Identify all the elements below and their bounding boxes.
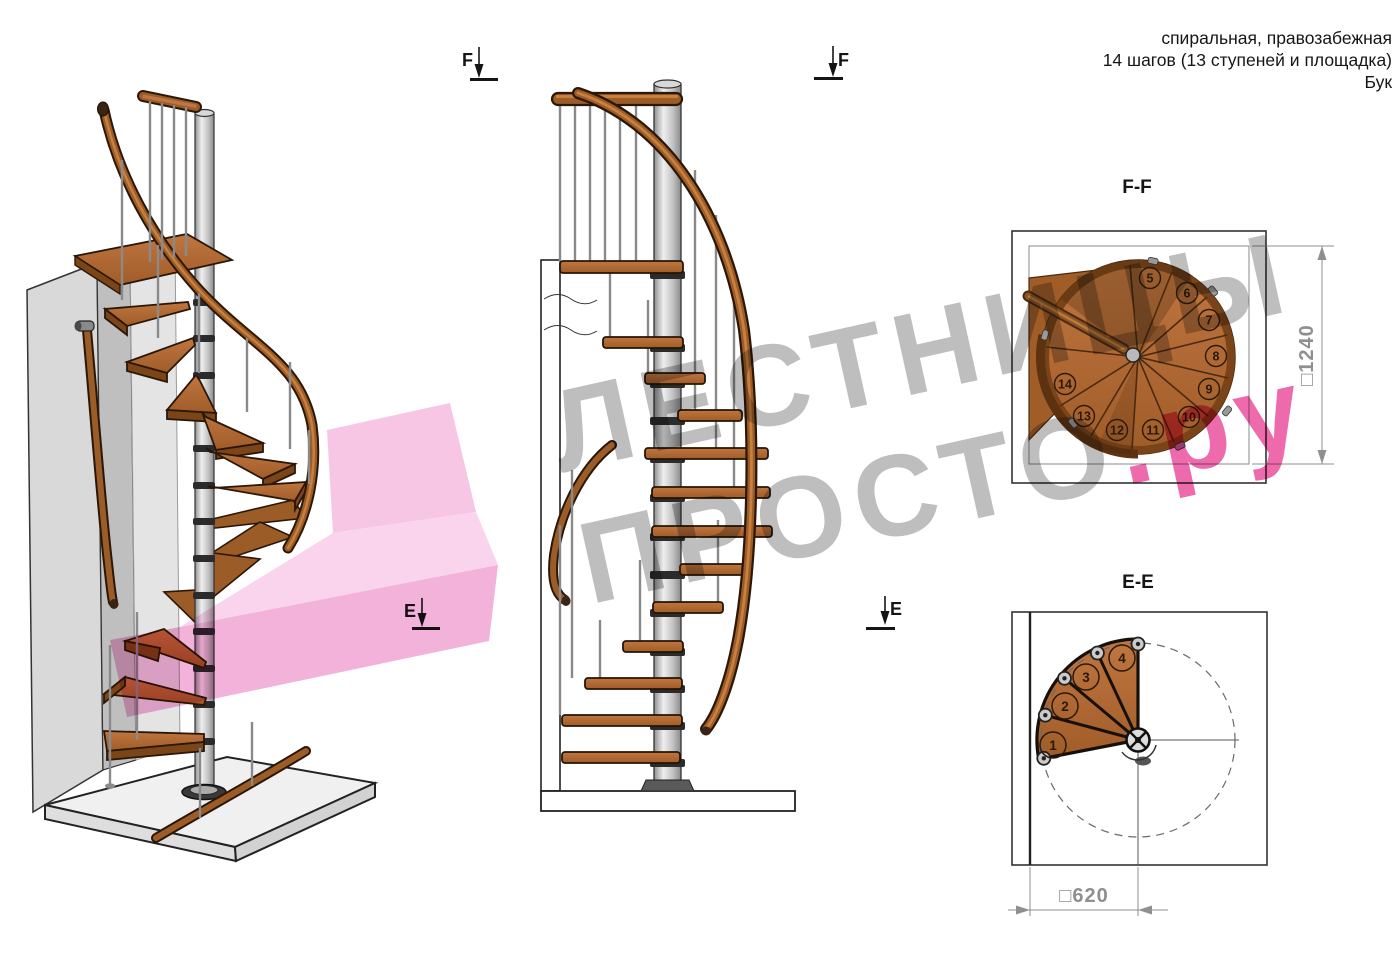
svg-text:6: 6 <box>1184 287 1191 301</box>
svg-text:5: 5 <box>1147 272 1154 286</box>
svg-text:1: 1 <box>1049 738 1057 753</box>
ee-plan-view: E-E <box>1008 572 1267 916</box>
title-line-steps: 14 шагов (13 ступеней и площадка) <box>1103 49 1392 71</box>
wall-section <box>541 260 597 791</box>
section-marker-f-right: F <box>814 46 849 79</box>
section-marker-f-left: F <box>462 47 498 80</box>
ff-label: F-F <box>1122 177 1152 198</box>
svg-text:7: 7 <box>1206 314 1213 328</box>
svg-text:10: 10 <box>1182 411 1196 425</box>
svg-text:13: 13 <box>1077 410 1091 424</box>
title-line-material: Бук <box>1103 71 1392 93</box>
ff-dimension-text: □1240 <box>1296 324 1318 386</box>
spiral-steps-back <box>164 500 306 639</box>
marker-letter: F <box>838 50 849 70</box>
staircase-drawing: F F E E F-F <box>0 0 1400 961</box>
svg-text:2: 2 <box>1061 699 1069 714</box>
svg-text:11: 11 <box>1146 424 1159 438</box>
center-elevation-view <box>541 80 795 811</box>
section-marker-e-left: E <box>404 598 440 629</box>
svg-text:8: 8 <box>1213 350 1220 364</box>
title-block: спиральная, правозабежная 14 шагов (13 с… <box>1103 27 1392 93</box>
section-marker-e-right: E <box>866 596 902 629</box>
svg-text:14: 14 <box>1058 378 1072 392</box>
marker-letter: E <box>890 599 902 619</box>
svg-text:12: 12 <box>1110 424 1124 438</box>
ee-dimension-text: □620 <box>1059 885 1108 907</box>
marker-letter: E <box>404 601 416 621</box>
svg-text:4: 4 <box>1118 651 1126 666</box>
marker-letter: F <box>462 50 473 70</box>
svg-text:3: 3 <box>1082 670 1090 685</box>
ee-dimension: □620 <box>1008 867 1168 916</box>
title-line-type: спиральная, правозабежная <box>1103 27 1392 49</box>
left-isometric-view <box>27 96 375 861</box>
ff-plan-view: F-F <box>1012 177 1334 483</box>
floor-section <box>541 791 795 811</box>
svg-text:9: 9 <box>1206 383 1213 397</box>
ee-label: E-E <box>1122 572 1154 593</box>
page: { "title": { "line1": "спиральная, право… <box>0 0 1400 961</box>
